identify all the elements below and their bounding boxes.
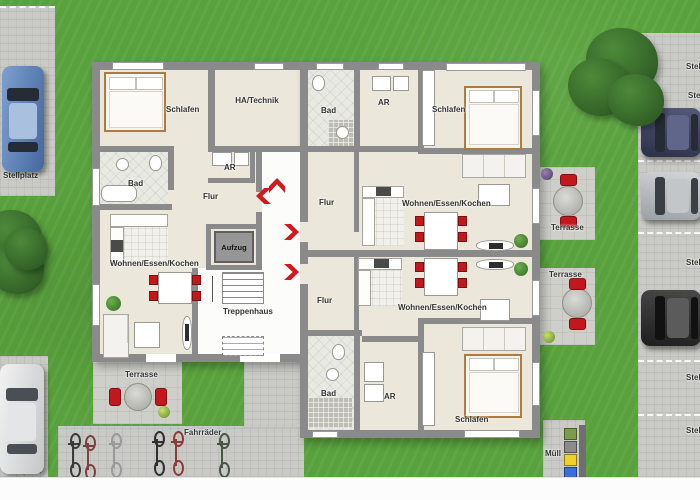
wall-segment	[354, 152, 359, 232]
car-silver	[641, 172, 700, 220]
storage-cabinet	[234, 152, 249, 166]
kitchen-counter	[358, 270, 371, 306]
stairs-lower-flight	[222, 336, 264, 356]
plant	[541, 168, 553, 180]
chair	[458, 262, 467, 272]
waste-bin	[564, 441, 577, 453]
wall-segment	[300, 250, 540, 257]
terrace-table	[124, 383, 152, 411]
window	[532, 90, 540, 136]
kitchen-counter	[362, 198, 375, 246]
kitchen-counter	[110, 214, 168, 227]
sofa	[462, 154, 526, 178]
wall-segment	[300, 62, 308, 222]
chair	[192, 275, 201, 285]
waste-bin	[564, 428, 577, 440]
room-label-storage-tr: AR	[378, 99, 390, 108]
bicycle	[109, 433, 120, 475]
car-blue	[2, 66, 44, 172]
storage-cabinet	[364, 384, 384, 402]
room-label-hallway-left: Flur	[203, 193, 218, 202]
parking-stall-line	[638, 414, 700, 416]
stairs-upper-flight	[222, 272, 264, 304]
parking-stall-line	[638, 160, 700, 162]
room-label-living-left: Wohnen/Essen/Kochen	[110, 260, 199, 269]
parking-stall-line	[638, 360, 700, 362]
terrace-door	[532, 280, 540, 316]
stove	[376, 187, 391, 196]
bicycle	[68, 433, 79, 475]
plant	[514, 262, 528, 276]
room-label-living-br: Wohnen/Essen/Kochen	[398, 304, 487, 313]
chair	[415, 278, 424, 288]
parking-label-right: Stellplatz	[686, 374, 700, 383]
tv	[489, 243, 503, 249]
room-label-stairwell: Treppenhaus	[223, 308, 273, 317]
bicycle	[217, 433, 228, 475]
wall-segment	[92, 204, 172, 210]
stove	[374, 259, 389, 268]
terrace-label-left: Terrasse	[125, 371, 158, 380]
room-label-bedroom-tr: Schlafen	[432, 106, 465, 115]
plant	[543, 331, 555, 343]
sofa	[462, 327, 526, 351]
elevator-label: Aufzug	[221, 243, 246, 252]
room-label-bathroom-left: Bad	[128, 180, 143, 189]
parking-label-top-left: Stellplatz	[3, 172, 38, 181]
waste-area-label: Müll	[545, 450, 561, 459]
wall-segment	[256, 152, 262, 192]
dining-table	[158, 272, 192, 304]
bike-area-label: Fahrräder	[184, 429, 221, 438]
room-label-hallway-tr: Flur	[319, 199, 334, 208]
waste-bin	[564, 454, 577, 466]
terrace-door	[532, 188, 540, 224]
chair	[458, 278, 467, 288]
chair	[415, 216, 424, 226]
sink	[116, 158, 129, 171]
room-label-ha-technik: HA/Technik	[224, 97, 290, 106]
parking-label-right: Stellplatz	[686, 63, 700, 72]
wall-segment	[208, 62, 215, 152]
chair	[149, 275, 158, 285]
wardrobe	[422, 352, 435, 426]
wall-segment	[92, 146, 172, 152]
room-label-storage-left: AR	[224, 164, 236, 173]
bicycle	[152, 431, 163, 473]
tv	[185, 324, 189, 341]
plant	[158, 406, 170, 418]
parking-label-right: Stellplatz	[688, 92, 700, 101]
window	[312, 431, 338, 438]
parking-stall-line	[0, 6, 55, 8]
car-white	[0, 364, 44, 474]
toilet	[149, 155, 162, 171]
wall-segment	[208, 178, 255, 183]
storage-cabinet	[372, 76, 391, 91]
tv	[489, 262, 503, 268]
parking-stall-line	[638, 232, 700, 234]
wall-segment	[362, 336, 420, 342]
window	[532, 362, 540, 406]
toilet	[312, 75, 325, 91]
window	[316, 63, 344, 70]
room-label-bedroom-br: Schlafen	[455, 416, 488, 425]
coffee-table	[134, 322, 160, 348]
waste-enclosure-wall	[579, 425, 586, 477]
room-label-storage-br: AR	[384, 393, 396, 402]
dining-table	[424, 258, 458, 296]
plant	[514, 234, 528, 248]
window	[378, 63, 404, 70]
storage-cabinet	[364, 362, 384, 382]
floor-plan-scene: Aufzug	[0, 0, 700, 500]
wall-segment	[300, 284, 308, 430]
wall-segment	[354, 62, 360, 152]
wall-segment	[300, 330, 362, 336]
wall-segment	[300, 146, 422, 152]
entrance-walkway	[244, 362, 302, 428]
toilet	[332, 344, 345, 360]
bed	[464, 86, 522, 150]
tree	[608, 74, 664, 126]
room-label-bathroom-tr: Bad	[321, 107, 336, 116]
bed	[464, 354, 522, 418]
plant	[106, 296, 121, 311]
corridor	[262, 152, 300, 272]
stove	[111, 240, 123, 252]
storage-cabinet	[393, 76, 409, 91]
car-black	[641, 290, 700, 346]
bicycle	[83, 435, 94, 477]
chair	[415, 262, 424, 272]
sofa	[103, 314, 129, 358]
window	[92, 168, 100, 206]
page-margin	[0, 477, 700, 500]
dining-table	[424, 212, 458, 250]
parking-label-right: Stellplatz	[686, 259, 700, 268]
bed	[104, 72, 166, 132]
chair	[458, 216, 467, 226]
terrace-door	[146, 354, 176, 362]
window	[254, 63, 284, 70]
chair	[109, 388, 121, 406]
window	[446, 63, 526, 71]
wall-segment	[168, 146, 174, 190]
sink	[326, 368, 339, 381]
chair	[155, 388, 167, 406]
chair	[569, 278, 586, 290]
stairs-direction-line	[212, 276, 213, 302]
room-label-bedroom-left: Schlafen	[166, 106, 199, 115]
sink	[336, 126, 349, 139]
shower-bottom	[308, 398, 352, 428]
elevator: Aufzug	[214, 231, 254, 263]
chair	[415, 232, 424, 242]
room-label-hallway-br: Flur	[317, 297, 332, 306]
chair	[458, 232, 467, 242]
chair	[560, 174, 577, 186]
room-label-living-tr: Wohnen/Essen/Kochen	[402, 200, 491, 209]
room-label-bathroom-br: Bad	[321, 390, 336, 399]
wall-segment	[354, 336, 360, 432]
terrace-table	[562, 288, 592, 318]
terrace-table	[553, 186, 583, 216]
chair	[192, 291, 201, 301]
terrace-label-right-upper: Terrasse	[551, 224, 584, 233]
parking-label-right: Stellplatz	[686, 427, 700, 436]
window	[92, 284, 100, 326]
terrace-label-right-lower: Terrasse	[549, 271, 582, 280]
watermark: © Illustration	[487, 433, 512, 438]
wall-segment	[418, 318, 540, 324]
chair	[569, 318, 586, 330]
tree	[4, 228, 48, 270]
window	[112, 62, 164, 70]
bicycle	[171, 431, 182, 473]
chair	[149, 291, 158, 301]
